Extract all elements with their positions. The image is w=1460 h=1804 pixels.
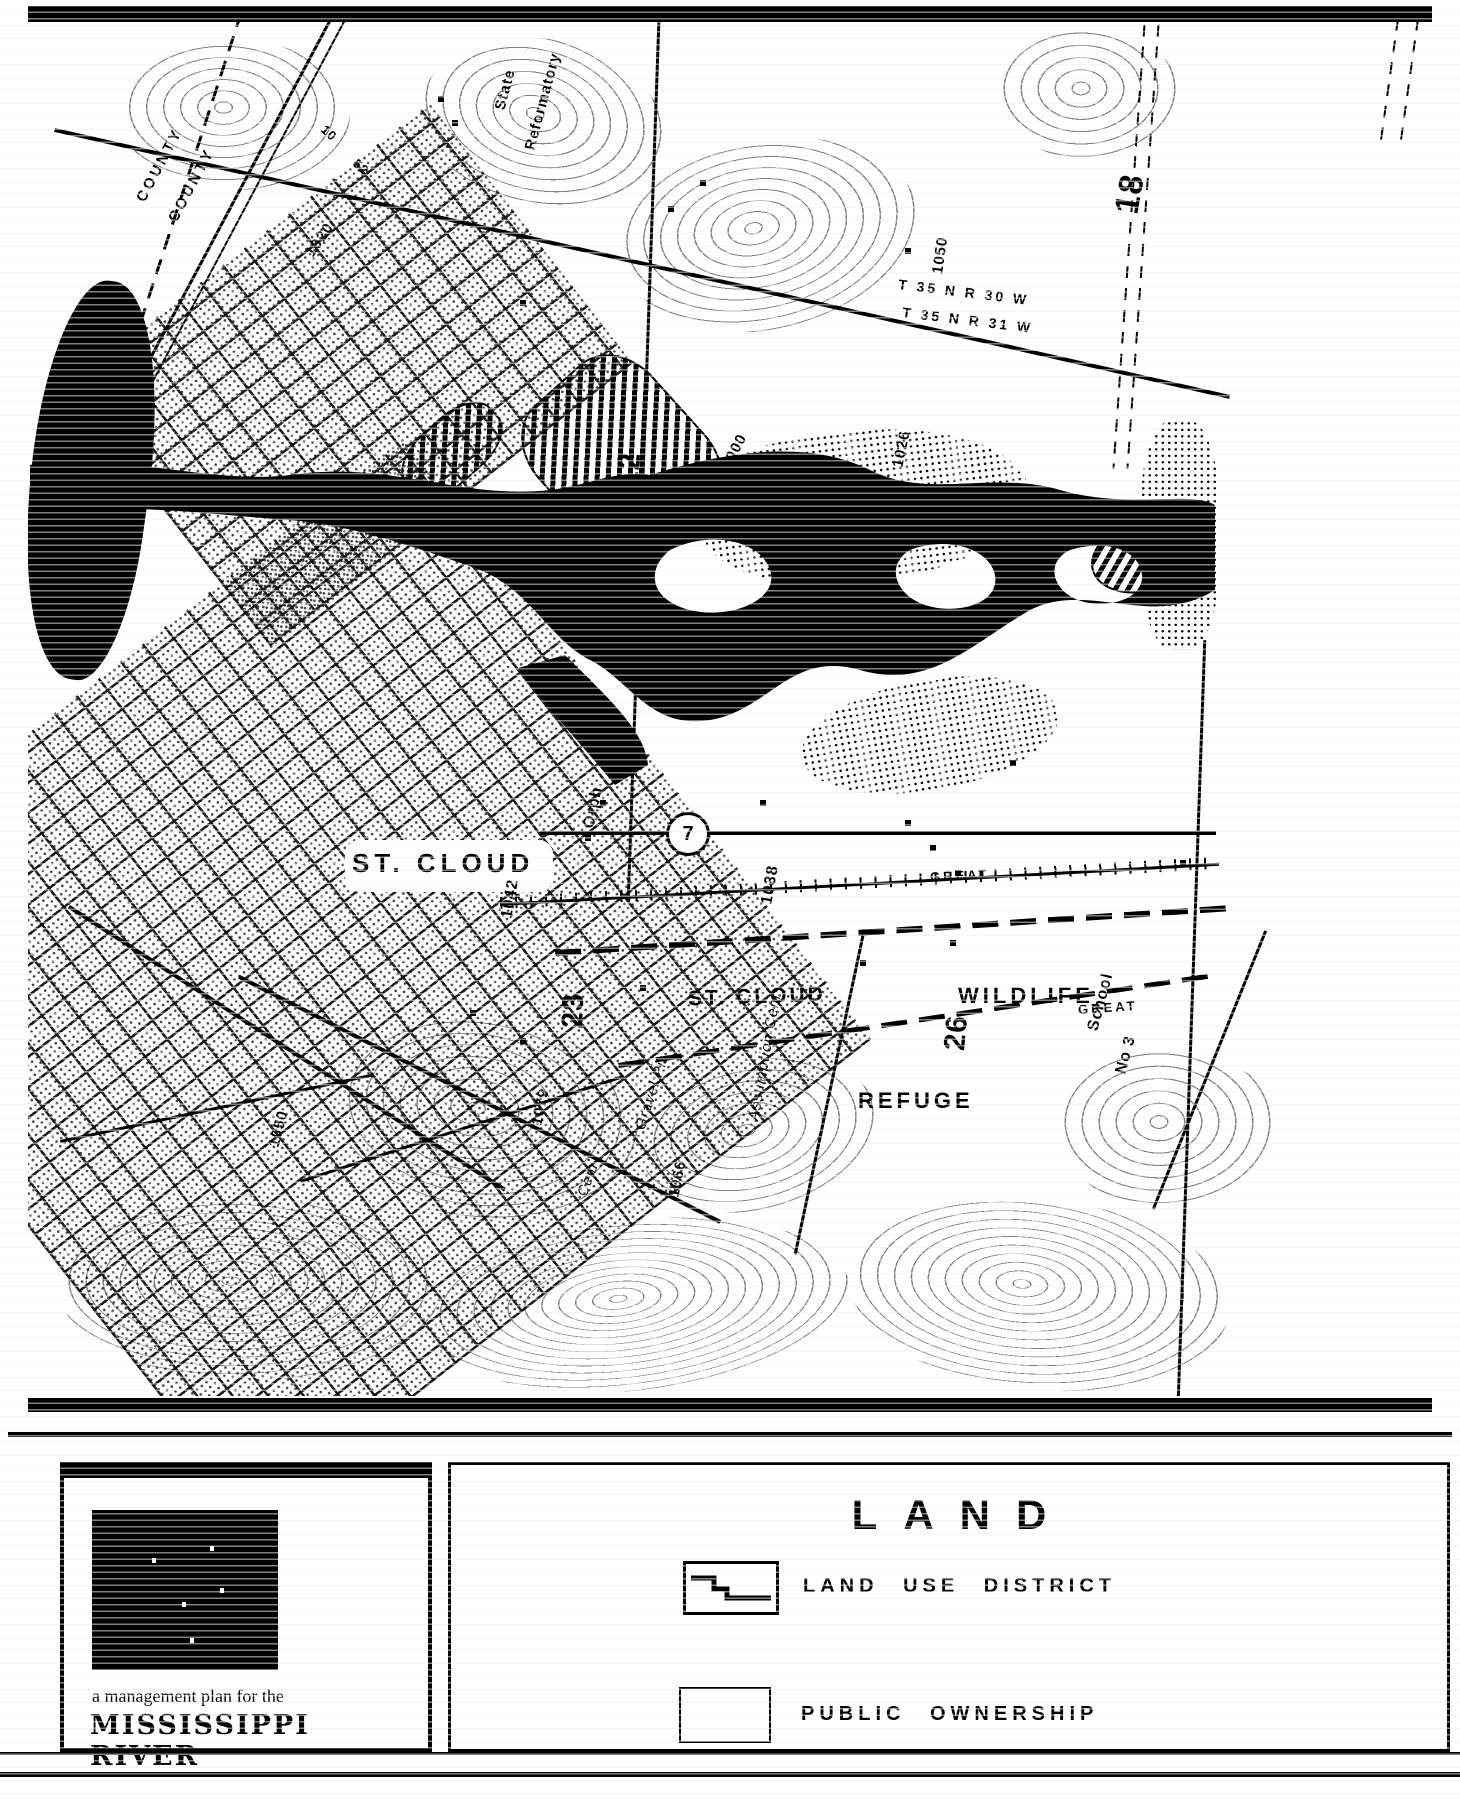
contour-elevation-label: 1050 (929, 236, 951, 275)
contour-texture (60, 1200, 440, 1380)
image-speck (190, 1638, 194, 1643)
map-sheet: COUNTY COUNTY State Reformatory 10 52 10… (28, 22, 1432, 1396)
section-number-label: 23 (556, 992, 591, 1029)
wildlife-refuge-label: WILDLIFE (958, 983, 1094, 1009)
separator-rule (8, 1432, 1452, 1437)
map-top-border (28, 6, 1432, 22)
legend-item-label: PUBLIC OWNERSHIP (801, 1703, 1098, 1726)
stipple-texture (1140, 420, 1220, 650)
plan-logo-image (92, 1510, 278, 1670)
wildlife-refuge-label: REFUGE (858, 1088, 974, 1114)
building-marks (438, 96, 444, 102)
stepped-boundary-icon (686, 1564, 776, 1612)
map-edge-tick (1399, 22, 1419, 148)
land-legend-panel: LAND LAND USE DISTRICT PUBLIC OWNERSHIP (448, 1462, 1450, 1752)
contour-texture (1060, 1050, 1280, 1210)
contour-elevation-label: 1038 (758, 864, 783, 906)
public-ownership-symbol (679, 1687, 771, 1743)
township-range-label: T 35 N R 31 W (902, 304, 1035, 336)
plan-title: MISSISSIPPI RIVER (90, 1710, 428, 1772)
city-name-label: ST. CLOUD (352, 848, 534, 879)
image-speck (220, 1588, 224, 1593)
image-speck (182, 1602, 186, 1607)
legend-bottom-rule-2 (0, 1772, 1460, 1777)
scanned-map-page: COUNTY COUNTY State Reformatory 10 52 10… (0, 0, 1460, 1804)
township-range-label: T 35 N R 30 W (898, 276, 1031, 308)
map-edge-tick (1379, 22, 1399, 148)
route-shield-7: 7 (666, 812, 710, 856)
plan-subtitle: a management plan for the (92, 1686, 284, 1707)
image-speck (152, 1558, 156, 1563)
railroad-name-label: GREAT (930, 866, 990, 884)
section-number-label: 12 (611, 451, 648, 489)
legend-title: LAND (451, 1491, 1447, 1539)
city-name-label: ST. CLOUD (688, 983, 827, 1012)
map-bottom-border (28, 1398, 1432, 1412)
land-use-district-symbol (683, 1561, 779, 1615)
section-number-label: 26 (938, 1014, 975, 1052)
plan-title-box: a management plan for the MISSISSIPPI RI… (60, 1462, 432, 1752)
image-speck (210, 1546, 214, 1551)
section-number-label: 18 (1108, 171, 1153, 217)
legend-item-label: LAND USE DISTRICT (803, 1575, 1116, 1598)
highway-7-road (540, 831, 1216, 835)
